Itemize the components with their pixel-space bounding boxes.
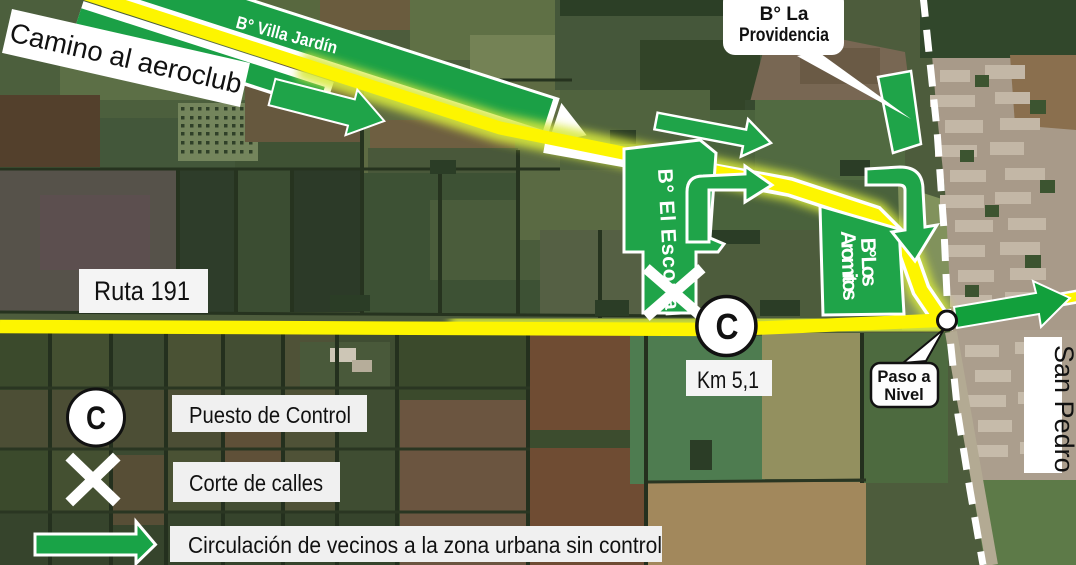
svg-text:Aromitos: Aromitos: [836, 230, 861, 301]
svg-text:C: C: [86, 400, 106, 436]
svg-text:Puesto de Control: Puesto de Control: [189, 402, 351, 428]
svg-text:C: C: [716, 306, 739, 347]
svg-text:Providencia: Providencia: [739, 25, 829, 46]
svg-text:Paso a: Paso a: [877, 368, 931, 386]
svg-text:Corte de calles: Corte de calles: [189, 470, 323, 496]
svg-text:Km 5,1: Km 5,1: [697, 367, 759, 394]
svg-text:San Pedro: San Pedro: [1049, 345, 1076, 473]
svg-text:Nivel: Nivel: [884, 386, 923, 404]
svg-text:Circulación de vecinos a la zo: Circulación de vecinos a la zona urbana …: [188, 532, 662, 558]
svg-text:Ruta 191: Ruta 191: [94, 276, 190, 306]
svg-text:B° La: B° La: [760, 4, 809, 25]
